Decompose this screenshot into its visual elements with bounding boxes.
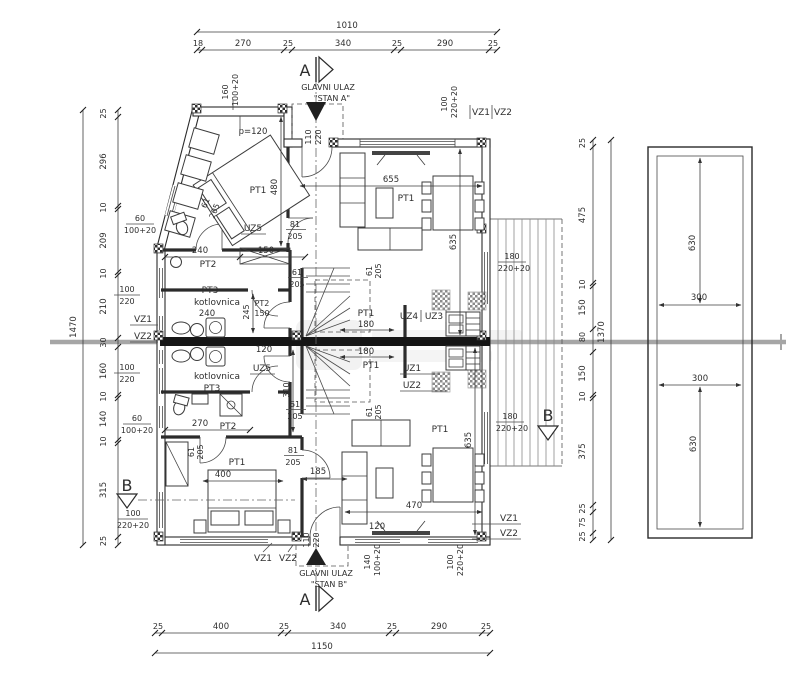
room-pt1-hall-a: PT1 bbox=[358, 309, 375, 319]
dim-left-seg: 140 bbox=[99, 411, 109, 427]
dim-bottom-seg: 25 bbox=[481, 622, 491, 631]
dim-bath-b: 270 bbox=[192, 419, 208, 429]
floor-plan-drawing: 630 300 300 630 bbox=[0, 0, 789, 690]
dim-corridor-a: 240 bbox=[192, 246, 208, 256]
pool-length-lower: 630 bbox=[689, 436, 699, 452]
win-100-220-left-bed: 220+20 bbox=[117, 521, 149, 530]
label-uz2: UZ2 bbox=[403, 381, 421, 391]
dim-chain-left: 25 296 10 209 10 210 30 160 10 140 10 31… bbox=[69, 107, 121, 548]
entrance-b-apartment: "STAN B" bbox=[311, 580, 347, 589]
label-vz2-left: VZ2 bbox=[134, 332, 152, 342]
dim-door-120-b: 120 bbox=[256, 345, 272, 355]
dim-right-total: 1370 bbox=[597, 321, 607, 343]
dim-left-seg: 10 bbox=[99, 202, 108, 212]
label-uz5-a: UZ5 bbox=[244, 224, 262, 234]
section-b-letter-right: B bbox=[543, 406, 554, 425]
entrance-b-label: GLAVNI ULAZ bbox=[299, 569, 353, 578]
label-vz1-bottom-right: VZ1 bbox=[500, 514, 518, 524]
dim-right-seg: 10 bbox=[578, 279, 587, 289]
dim-bottom-seg: 25 bbox=[279, 622, 289, 631]
room-p120: p=120 bbox=[239, 127, 268, 137]
win-100-220: 220+20 bbox=[450, 86, 459, 118]
dim-left-seg: 160 bbox=[99, 363, 109, 379]
win-60-100-left-b: 60 bbox=[132, 414, 142, 423]
door-61-205-rot: 205 bbox=[196, 444, 205, 459]
dim-right-seg: 475 bbox=[578, 207, 588, 223]
dim-245: 245 bbox=[242, 304, 251, 319]
entrance-a: GLAVNI ULAZ "STAN A" bbox=[301, 83, 355, 121]
win-140-100-b: 140 bbox=[363, 554, 372, 569]
dim-bottom-seg: 25 bbox=[153, 622, 163, 631]
dim-left-seg: 30 bbox=[99, 337, 108, 347]
dim-top-seg: 25 bbox=[392, 39, 402, 48]
label-vz2-top: VZ2 bbox=[494, 108, 512, 118]
room-pt1-bedroom-b: PT1 bbox=[229, 458, 246, 468]
dim-310: 310 bbox=[282, 382, 291, 397]
entrance-a-label: GLAVNI ULAZ bbox=[301, 83, 355, 92]
dim-left-seg: 25 bbox=[99, 108, 108, 118]
door-180-220-a: 220+20 bbox=[498, 264, 530, 273]
room-kotlovnica-b: kotlovnica bbox=[194, 372, 240, 382]
dim-niche-a: 150 bbox=[258, 246, 274, 256]
win-100-220-left-b: 100 bbox=[119, 363, 134, 372]
dim-hall-a: 180 bbox=[358, 320, 374, 330]
door-81-205: 205 bbox=[287, 232, 302, 241]
dim-bottom-seg: 25 bbox=[387, 622, 397, 631]
dim-bedroom-a-depth: 480 bbox=[270, 179, 280, 195]
dim-right-seg: 25 bbox=[578, 138, 587, 148]
label-uz5-b: UZ5 bbox=[253, 364, 271, 374]
dim-left-seg: 210 bbox=[99, 298, 109, 314]
dim-bottom-seg: 340 bbox=[330, 622, 346, 632]
dim-living-b-depth: 635 bbox=[464, 432, 474, 448]
win-100-220-left-bed: 100 bbox=[125, 509, 140, 518]
win-100-220-left-a: 100 bbox=[119, 285, 134, 294]
win-140-100-b: 100+20 bbox=[373, 544, 382, 576]
dim-chain-bottom: 25 400 25 340 25 290 25 1150 bbox=[152, 622, 493, 656]
door-81-205: 205 bbox=[285, 458, 300, 467]
room-pt3-a: PT3 bbox=[202, 286, 219, 296]
label-vz1-left: VZ1 bbox=[134, 315, 152, 325]
dim-bottom-seg: 290 bbox=[431, 622, 447, 632]
door-61-205: 61 bbox=[292, 268, 302, 277]
win-160-100: 100+20 bbox=[231, 74, 240, 106]
door-180-220-a: 180 bbox=[504, 252, 519, 261]
dim-top-seg: 290 bbox=[437, 39, 453, 49]
win-60-100-slant: 100+20 bbox=[124, 226, 156, 235]
dim-top-seg: 25 bbox=[283, 39, 293, 48]
pool-length-upper: 630 bbox=[688, 235, 698, 251]
dim-right-seg: 80 bbox=[578, 332, 587, 342]
pool-width-lower: 300 bbox=[692, 374, 708, 384]
dim-right-seg: 75 bbox=[578, 517, 587, 527]
room-pt2-niche-a: PT2 bbox=[255, 299, 270, 308]
dim-top-seg: 340 bbox=[335, 39, 351, 49]
label-uz3: UZ3 bbox=[425, 312, 443, 322]
label-vz2-bottom-right: VZ2 bbox=[500, 529, 518, 539]
label-vz1-bottom-center: VZ1 bbox=[254, 554, 272, 564]
room-kotlovnica-a: kotlovnica bbox=[194, 298, 240, 308]
dim-chain-top: 1010 18 270 25 340 25 290 25 bbox=[193, 21, 500, 53]
pool-width-upper: 300 bbox=[691, 293, 707, 303]
door-61-205-rot: 205 bbox=[374, 263, 383, 278]
room-pt1-living-a: PT1 bbox=[398, 194, 415, 204]
door-180-220-b: 220+20 bbox=[496, 424, 528, 433]
door-61-205: 205 bbox=[287, 412, 302, 421]
dim-left-seg: 10 bbox=[99, 436, 108, 446]
door-61-205-rot: 205 bbox=[374, 404, 383, 419]
dim-left-seg: 10 bbox=[99, 268, 108, 278]
door-81-205: 81 bbox=[290, 220, 300, 229]
dim-kotlovnica-a: 240 bbox=[199, 309, 215, 319]
win-100-220: 100 bbox=[440, 96, 449, 111]
dim-niche-150: 150 bbox=[254, 309, 269, 318]
dim-top-seg: 270 bbox=[235, 39, 251, 49]
room-pt3-b: PT3 bbox=[204, 384, 221, 394]
room-pt1-living-b: PT1 bbox=[432, 425, 449, 435]
dim-bottom-seg: 400 bbox=[213, 622, 229, 632]
dim-right-seg: 150 bbox=[578, 299, 588, 315]
dim-right-seg: 25 bbox=[578, 503, 587, 513]
entrance-b: GLAVNI ULAZ "STAN B" bbox=[299, 548, 353, 589]
door-110-220-b: 110 bbox=[302, 532, 311, 547]
door-61-205-rot: 61 bbox=[365, 266, 374, 276]
win-60-100-slant: 60 bbox=[135, 214, 145, 223]
dim-right-seg: 150 bbox=[578, 365, 588, 381]
win-100-220-b: 220+20 bbox=[456, 544, 465, 576]
room-pt2-corridor-a: PT2 bbox=[200, 260, 217, 270]
entrance-a-apartment: "STAN A" bbox=[314, 94, 350, 103]
dim-bed-b-width: 400 bbox=[215, 470, 231, 480]
win-160-100: 160 bbox=[221, 84, 230, 99]
win-100-220-b: 100 bbox=[446, 554, 455, 569]
section-b-letter-left: B bbox=[122, 476, 133, 495]
floor-plan-page: 630 300 300 630 bbox=[0, 0, 789, 690]
dim-top-seg: 25 bbox=[488, 39, 498, 48]
section-a-letter-top: A bbox=[300, 61, 311, 80]
win-60-100-left-b: 100+20 bbox=[121, 426, 153, 435]
door-110-220: 220 bbox=[314, 129, 323, 144]
win-100-220-left-a: 220 bbox=[119, 297, 134, 306]
label-uz1: UZ1 bbox=[403, 364, 421, 374]
dim-hall-b: 180 bbox=[358, 347, 374, 357]
dim-living-a-width: 655 bbox=[383, 175, 399, 185]
room-pt1-bedroom-a: PT1 bbox=[250, 186, 267, 196]
door-81-205: 81 bbox=[288, 446, 298, 455]
dim-living-a-depth: 635 bbox=[449, 234, 459, 250]
label-vz1-top: VZ1 bbox=[472, 108, 490, 118]
dim-185: 185 bbox=[310, 467, 326, 477]
dim-left-seg: 10 bbox=[99, 391, 108, 401]
dim-left-total: 1470 bbox=[69, 316, 79, 338]
dim-living-b-width: 470 bbox=[406, 501, 422, 511]
dim-right-seg: 10 bbox=[578, 391, 587, 401]
dim-right-seg: 375 bbox=[578, 443, 588, 459]
win-100-220-left-b: 220 bbox=[119, 375, 134, 384]
section-a-letter-bottom: A bbox=[300, 590, 311, 609]
door-180-220-b: 180 bbox=[502, 412, 517, 421]
dim-window-120: 120 bbox=[369, 522, 385, 532]
door-110-220: 110 bbox=[304, 129, 313, 144]
dim-left-seg: 25 bbox=[99, 536, 108, 546]
door-61-205: 61 bbox=[290, 400, 300, 409]
door-110-220-b: 220 bbox=[312, 532, 321, 547]
dim-left-seg: 296 bbox=[99, 153, 109, 169]
dim-left-seg: 315 bbox=[99, 482, 109, 498]
label-vz2-bottom-center: VZ2 bbox=[279, 554, 297, 564]
door-61-205-rot: 61 bbox=[365, 407, 374, 417]
room-pt1-hall-b: PT1 bbox=[363, 361, 380, 371]
door-61-205: 205 bbox=[289, 280, 304, 289]
label-uz4: UZ4 bbox=[400, 312, 419, 322]
dim-right-seg: 25 bbox=[578, 531, 587, 541]
dim-top-seg: 18 bbox=[193, 39, 203, 48]
dim-left-seg: 209 bbox=[99, 232, 109, 248]
dim-top-total: 1010 bbox=[336, 21, 358, 31]
dim-bottom-total: 1150 bbox=[311, 642, 333, 652]
room-pt2-bath-b: PT2 bbox=[220, 422, 237, 432]
door-61-205-rot: 61 bbox=[187, 447, 196, 457]
